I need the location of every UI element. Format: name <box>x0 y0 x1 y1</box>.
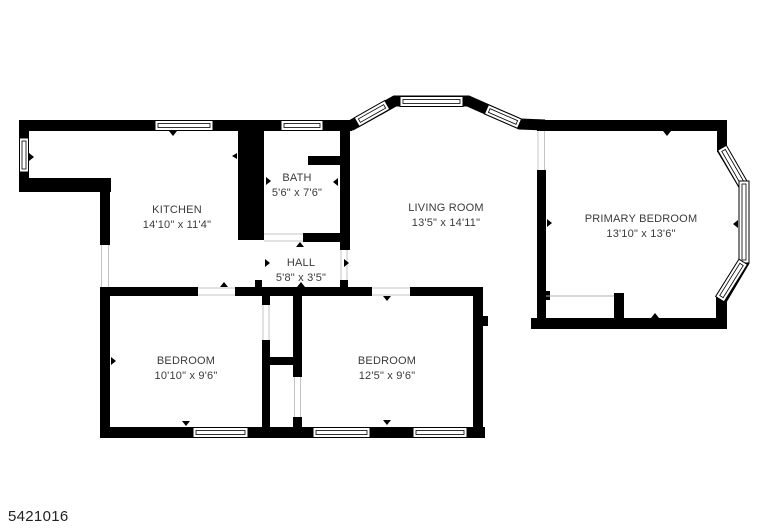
window <box>313 428 370 438</box>
window <box>281 121 323 131</box>
door-marker <box>182 421 190 426</box>
door-marker <box>383 420 391 425</box>
room-dimensions: 12'5" x 9'6" <box>358 369 416 384</box>
window <box>739 181 749 263</box>
door-marker <box>383 296 391 301</box>
room-name: KITCHEN <box>143 203 211 218</box>
door-marker <box>663 131 671 136</box>
room-dimensions: 13'5" x 14'11" <box>408 216 484 231</box>
door-marker <box>651 313 659 318</box>
window <box>718 145 748 186</box>
floor-plan-drawing <box>0 0 768 532</box>
room-label-bath: BATH 5'6" x 7'6" <box>272 171 322 201</box>
floor-plan-page: KITCHEN 14'10" x 11'4" BATH 5'6" x 7'6" … <box>0 0 768 532</box>
window <box>484 105 521 128</box>
room-label-bedroom-right: BEDROOM 12'5" x 9'6" <box>358 354 416 384</box>
room-label-kitchen: KITCHEN 14'10" x 11'4" <box>143 203 211 233</box>
window <box>413 428 467 438</box>
window <box>20 138 29 172</box>
room-name: HALL <box>276 256 326 271</box>
window <box>155 121 213 131</box>
room-dimensions: 13'10" x 13'6" <box>585 227 698 242</box>
door-marker <box>266 177 271 185</box>
window <box>400 97 463 107</box>
door-marker <box>547 219 552 227</box>
room-label-hall: HALL 5'8" x 3'5" <box>276 256 326 286</box>
room-dimensions: 10'10" x 9'6" <box>155 369 218 384</box>
door-marker <box>265 259 270 267</box>
windows <box>20 97 750 438</box>
room-name: BATH <box>272 171 322 186</box>
room-name: BEDROOM <box>358 354 416 369</box>
door-marker <box>296 242 304 247</box>
door-marker <box>733 220 738 228</box>
door-marker <box>220 282 228 287</box>
room-dimensions: 5'8" x 3'5" <box>276 271 326 286</box>
window <box>193 428 248 438</box>
window <box>716 259 748 302</box>
door-marker <box>111 357 116 365</box>
room-label-living-room: LIVING ROOM 13'5" x 14'11" <box>408 201 484 231</box>
room-label-primary-bedroom: PRIMARY BEDROOM 13'10" x 13'6" <box>585 212 698 242</box>
walls <box>19 120 727 438</box>
room-label-bedroom-left: BEDROOM 10'10" x 9'6" <box>155 354 218 384</box>
plan-id: 5421016 <box>8 508 69 525</box>
door-marker <box>29 153 34 161</box>
door-marker <box>333 178 338 186</box>
room-dimensions: 5'6" x 7'6" <box>272 186 322 201</box>
door-marker <box>169 131 177 136</box>
room-name: LIVING ROOM <box>408 201 484 216</box>
room-name: PRIMARY BEDROOM <box>585 212 698 227</box>
room-dimensions: 14'10" x 11'4" <box>143 218 211 233</box>
window <box>354 101 389 127</box>
room-name: BEDROOM <box>155 354 218 369</box>
door-marker <box>232 153 237 159</box>
